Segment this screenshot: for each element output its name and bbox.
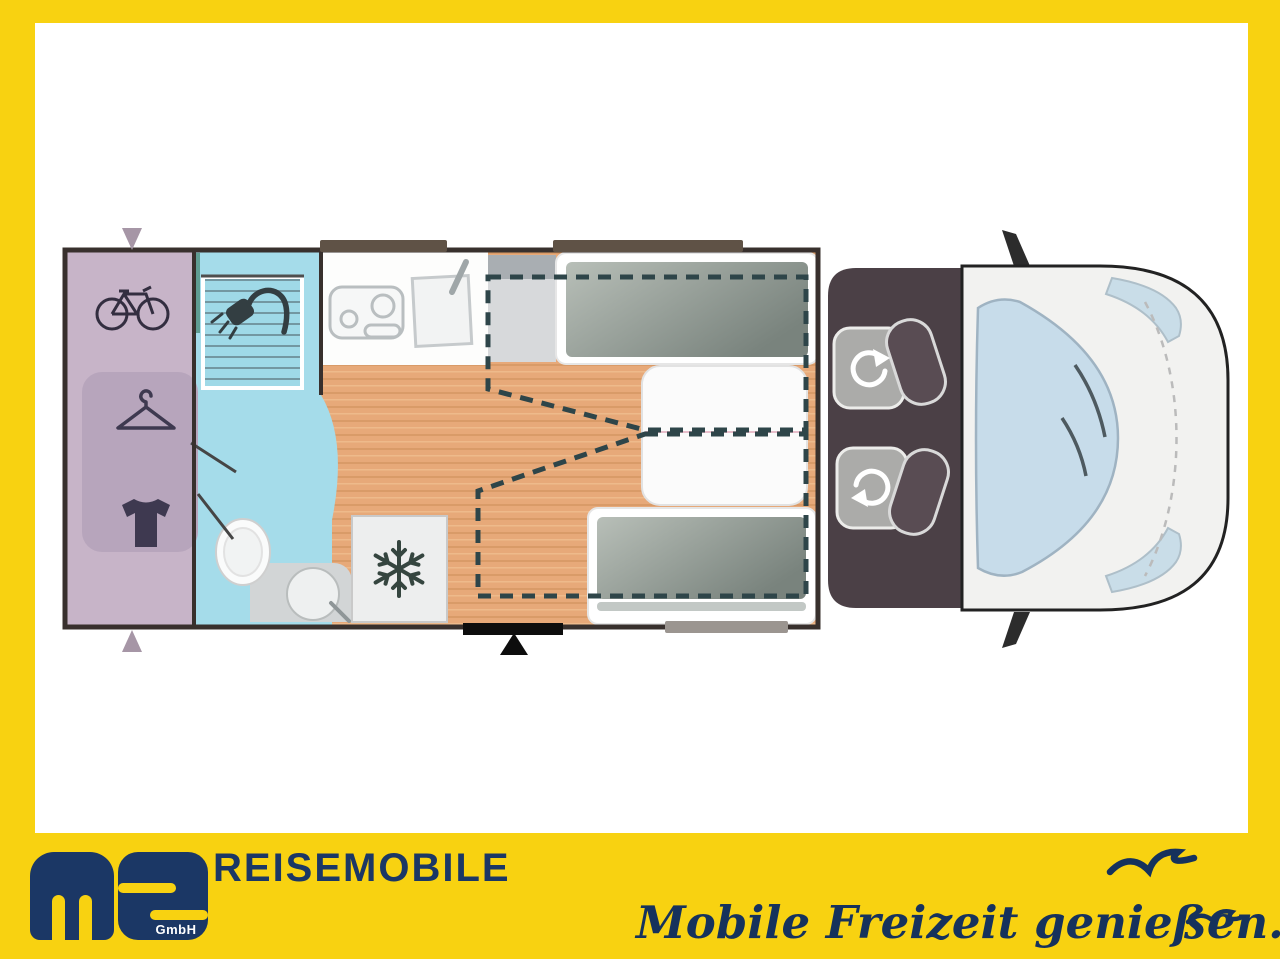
page: { "brand": { "wordmark": "REISEMOBILE", … xyxy=(0,0,1280,959)
garage-door-arrow-top xyxy=(122,228,142,250)
window-strip-bed-top xyxy=(553,240,743,252)
single-bed-top xyxy=(556,253,818,364)
logo-gmbh-label: GmbH xyxy=(150,922,202,937)
washbasin xyxy=(287,568,339,620)
garage-door-arrow-bottom xyxy=(122,630,142,652)
fridge xyxy=(352,516,447,622)
entry-door-arrow xyxy=(500,633,528,655)
window-strip-bed-bottom xyxy=(665,621,788,633)
motorhome-floorplan xyxy=(0,0,1280,959)
ms-logo-m xyxy=(30,852,114,940)
stove-icon xyxy=(330,287,403,338)
seagull-icon xyxy=(1188,911,1240,922)
cab-floor xyxy=(828,268,962,608)
side-mirror-bottom xyxy=(1002,612,1030,648)
single-bed-bottom xyxy=(588,508,816,624)
brand-wordmark: REISEMOBILE xyxy=(213,846,511,891)
side-mirror-top xyxy=(1002,230,1030,266)
driver-cab xyxy=(828,230,1228,648)
window-strip-kitchen xyxy=(320,240,447,252)
entry-door-strip xyxy=(463,623,563,635)
seagull-icons xyxy=(1090,840,1260,950)
seagull-icon xyxy=(1110,852,1194,872)
